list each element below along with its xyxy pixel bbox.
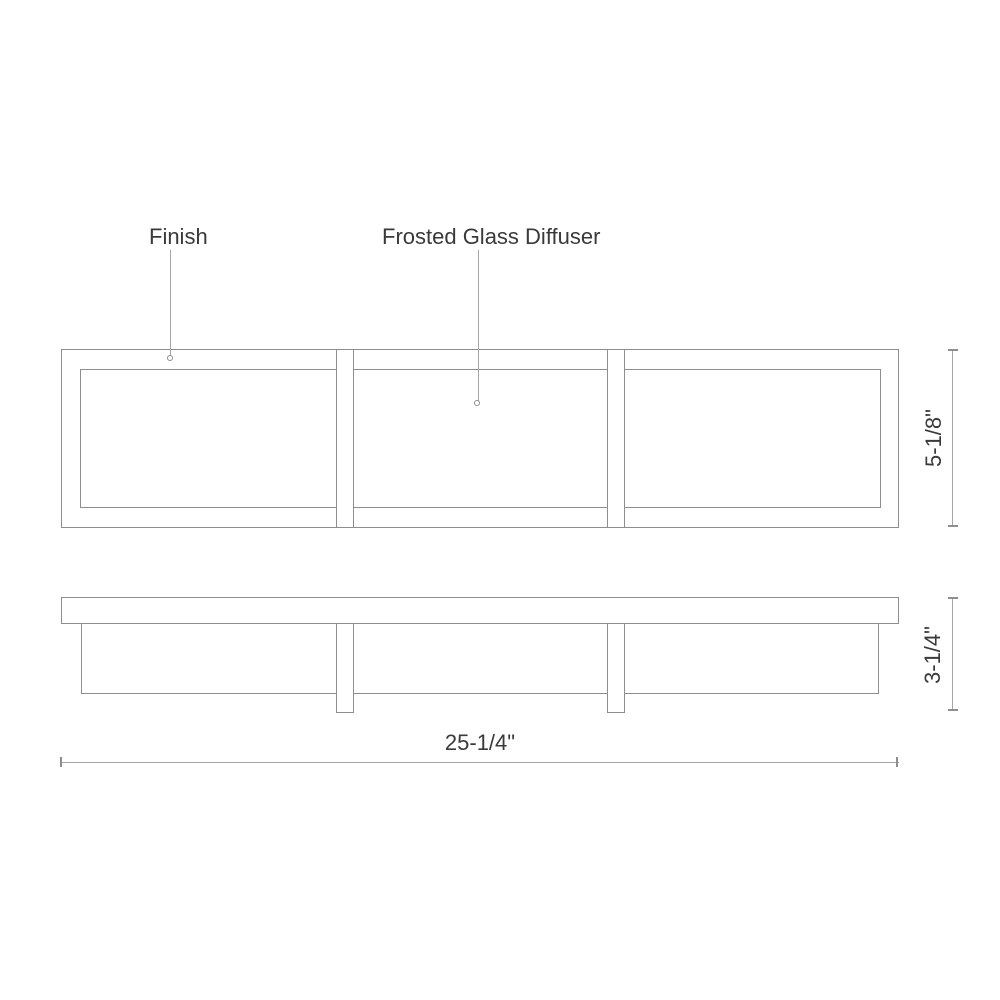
depth-dim-tick-top	[948, 597, 958, 599]
depth-dim-tick-bottom	[948, 709, 958, 711]
finish-leader-dot	[167, 355, 173, 361]
height-dim-tick-bottom	[948, 525, 958, 527]
bottom-body	[81, 622, 879, 694]
finish-leader-line	[170, 250, 171, 356]
front-divider-left	[336, 350, 354, 527]
depth-dim-label: 3-1/4"	[922, 626, 944, 684]
diffuser-callout-label: Frosted Glass Diffuser	[382, 225, 600, 249]
bottom-mounting-plate	[61, 597, 899, 624]
width-dim-label: 25-1/4"	[61, 732, 899, 754]
depth-dim-line	[952, 598, 953, 711]
diffuser-leader-line	[478, 250, 479, 401]
bottom-tab-right	[607, 623, 625, 713]
width-dim-line	[61, 762, 899, 763]
front-divider-right	[607, 350, 625, 527]
width-dim-tick-right	[896, 757, 898, 767]
bottom-tab-left	[336, 623, 354, 713]
front-glass-panel	[80, 369, 881, 508]
height-dim-tick-top	[948, 349, 958, 351]
height-dim-label: 5-1/8"	[923, 409, 945, 467]
diffuser-leader-dot	[474, 400, 480, 406]
width-dim-tick-left	[60, 757, 62, 767]
fixture-dimension-drawing: Finish Frosted Glass Diffuser 5-1/8" 3-1…	[0, 0, 1000, 1000]
finish-callout-label: Finish	[149, 225, 208, 249]
height-dim-line	[952, 350, 953, 527]
